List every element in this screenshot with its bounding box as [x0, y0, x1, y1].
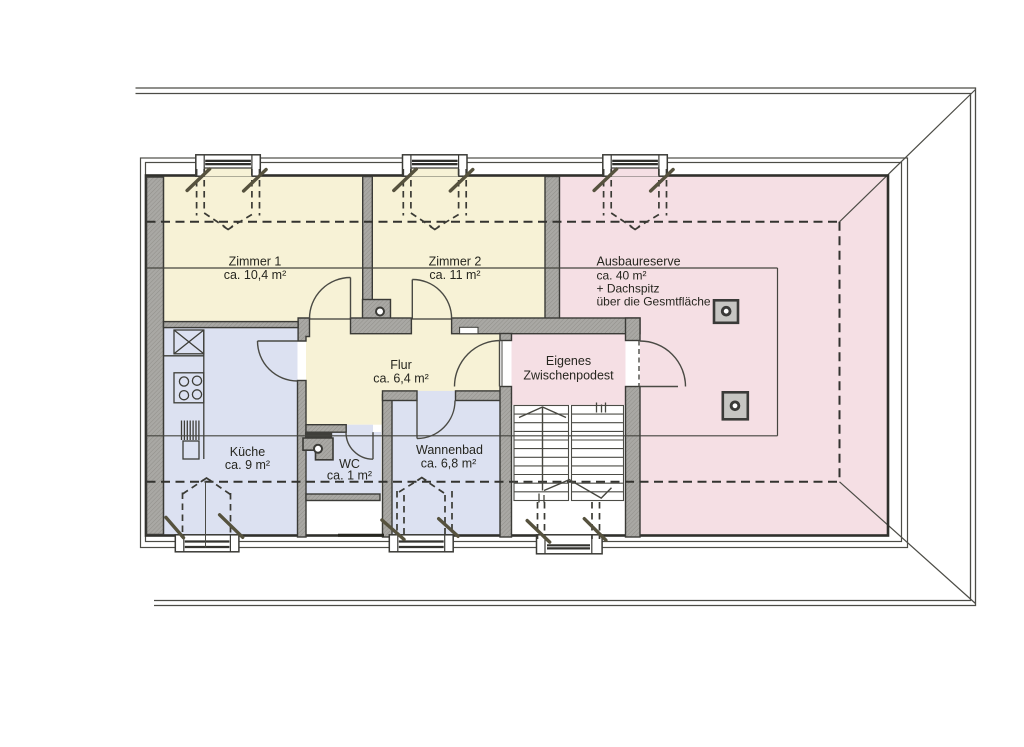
- svg-text:über die Gesmtfläche: über die Gesmtfläche: [597, 295, 711, 309]
- svg-text:Zimmer 1: Zimmer 1: [229, 255, 282, 269]
- svg-text:ca. 10,4 m²: ca. 10,4 m²: [224, 268, 287, 282]
- svg-text:Flur: Flur: [390, 358, 412, 372]
- svg-text:ca. 6,8 m²: ca. 6,8 m²: [421, 457, 477, 471]
- svg-text:Küche: Küche: [230, 445, 265, 459]
- svg-text:ca. 1 m²: ca. 1 m²: [327, 469, 372, 483]
- svg-text:ca. 9 m²: ca. 9 m²: [225, 458, 270, 472]
- svg-text:+ Dachspitz: + Dachspitz: [597, 282, 660, 296]
- svg-text:Zwischenpodest: Zwischenpodest: [523, 369, 614, 383]
- svg-text:ca. 40 m²: ca. 40 m²: [597, 269, 647, 283]
- svg-text:ca. 6,4 m²: ca. 6,4 m²: [373, 372, 429, 386]
- svg-text:Ausbaureserve: Ausbaureserve: [597, 255, 681, 269]
- svg-text:ca. 11 m²: ca. 11 m²: [429, 268, 480, 282]
- svg-text:Wannenbad: Wannenbad: [416, 443, 483, 457]
- svg-text:Zimmer 2: Zimmer 2: [429, 255, 482, 269]
- svg-text:Eigenes: Eigenes: [546, 354, 591, 368]
